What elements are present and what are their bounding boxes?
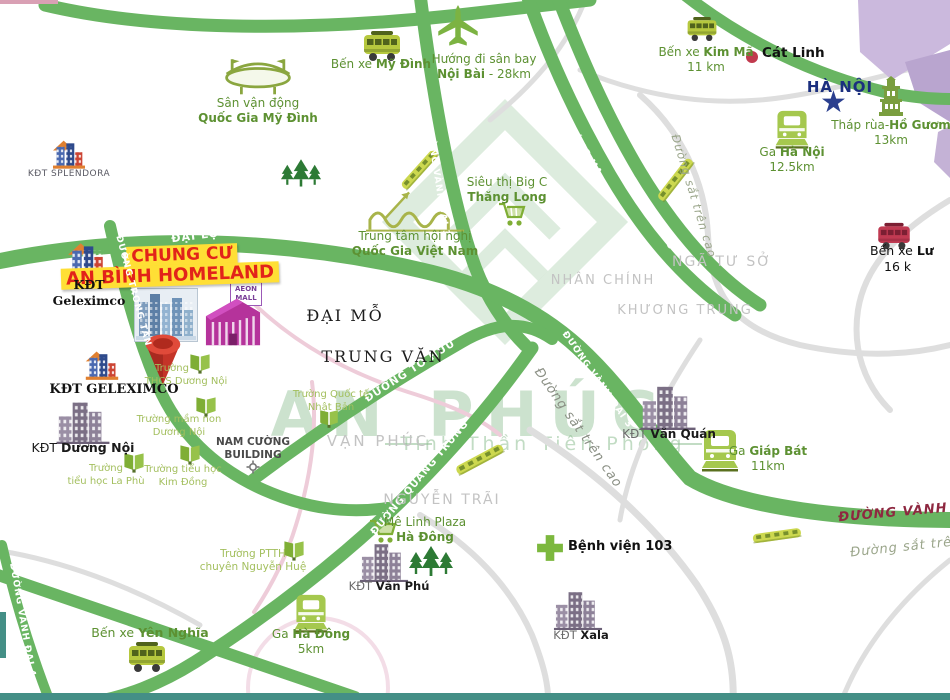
kdt-van-quan-label: KĐT Văn Quán bbox=[622, 427, 716, 442]
area-label-van-phuc: VẠN PHÚC bbox=[327, 432, 429, 450]
me-linh-line2: Hà Đông bbox=[396, 530, 454, 544]
noi-bai-label: Hướng đi sân bay Nội Bài - 28km bbox=[432, 52, 537, 82]
nguyen-hue-line1: Trường PTTH bbox=[200, 548, 307, 561]
kdt-building-icon-van-quan bbox=[636, 382, 700, 430]
kdt-duong-noi-prefix: KĐT bbox=[32, 440, 62, 455]
splendora-building-icon bbox=[50, 138, 88, 170]
ben-xe-luong-prefix: Bến xe bbox=[870, 243, 917, 258]
hoi-nghi-label: Trung tâm hội nghị Quốc Gia Việt Nam bbox=[352, 229, 478, 259]
noi-bai-line1: Hướng đi sân bay bbox=[432, 52, 537, 67]
geleximco-line2: Geleximco bbox=[53, 293, 126, 309]
benh-vien-103-label: Bệnh viện 103 bbox=[568, 539, 672, 555]
nam-cuong-label: NAM CƯỜNG BUILDING bbox=[216, 436, 290, 462]
turtle-tower-icon bbox=[872, 76, 910, 122]
ga-ha-dong-name: Hà Đông bbox=[292, 627, 350, 641]
kdt-geleximco-label: KĐT Geleximco bbox=[53, 277, 126, 308]
nam-cuong-line2: BUILDING bbox=[216, 449, 290, 462]
kdt-duong-noi-name: Dương Nội bbox=[61, 440, 134, 455]
ha-noi-label: HÀ NỘI bbox=[807, 78, 873, 97]
kim-ma-prefix: Bến xe bbox=[658, 45, 703, 59]
top-edge-strip bbox=[0, 0, 58, 4]
ben-xe-luong-label: Bến xe Lư bbox=[870, 243, 934, 259]
noi-bai-name: Nội Bài bbox=[437, 67, 485, 81]
nguyen-hue-line2: chuyên Nguyễn Huệ bbox=[200, 561, 307, 574]
la-phu-line1: Trường bbox=[67, 463, 144, 476]
ga-ha-noi-name: Hà Nội bbox=[780, 145, 825, 159]
school-book-icon-kim-dong bbox=[178, 444, 202, 466]
ga-ha-noi-distance: 12.5km bbox=[759, 160, 824, 175]
area-label-nga-tu-so: NGÃ TƯ SỞ bbox=[672, 254, 772, 270]
thcs-line1: Trường bbox=[117, 363, 228, 376]
ga-ha-dong-distance: 5km bbox=[272, 642, 350, 657]
yen-nghia-name: Yên Nghĩa bbox=[138, 625, 209, 640]
kdt-building-icon-van-phu bbox=[358, 540, 410, 582]
my-dinh-name: Mỹ Đình bbox=[376, 57, 431, 71]
area-label-trung-van: TRUNG VĂN bbox=[321, 347, 444, 366]
cat-linh-label: Cát Linh bbox=[762, 45, 825, 62]
geleximco2-building-icon bbox=[84, 346, 120, 384]
kdt-van-quan-prefix: KĐT bbox=[622, 427, 650, 441]
kim-ma-name: Kim Mã bbox=[703, 45, 753, 59]
mam-non-line1: Trường mầm non bbox=[137, 414, 222, 427]
ben-xe-luong-name: Lư bbox=[917, 243, 934, 258]
kdt-duong-noi-label: KĐT Dương Nội bbox=[32, 440, 135, 456]
left-edge-bar bbox=[0, 612, 6, 658]
me-linh-label: Mê Linh Plaza Hà Đông bbox=[384, 515, 466, 545]
giap-bat-name: Giáp Bát bbox=[749, 444, 807, 458]
thcs-duong-noi-label: Trường THCS Dương Nội bbox=[117, 363, 228, 388]
aeon-line1: AEON bbox=[235, 285, 257, 294]
nam-cuong-line1: NAM CƯỜNG bbox=[216, 436, 290, 449]
giap-bat-prefix: Ga bbox=[729, 444, 749, 458]
kdt-xala-label: KĐT Xala bbox=[553, 628, 608, 642]
nhat-ban-line1: Trường Quốc tế bbox=[293, 389, 369, 402]
splendora-label: KĐT SPLENDORA bbox=[28, 169, 110, 180]
mam-non-line2: Dương Nội bbox=[137, 427, 222, 440]
my-dinh-prefix: Bến xe bbox=[331, 57, 376, 71]
area-label-nguyen-trai: NGUYỄN TRÃI bbox=[383, 492, 500, 508]
stadium-icon bbox=[220, 50, 296, 98]
thcs-line2: THCS Dương Nội bbox=[145, 376, 228, 389]
kim-dong-label: Trường tiểu học Kim Đồng bbox=[144, 464, 221, 489]
kdt-van-phu-label: KĐT Văn Phú bbox=[349, 579, 430, 593]
geleximco-line1: KĐT bbox=[53, 277, 126, 293]
cart-icon-big-c bbox=[497, 201, 527, 229]
ga-ha-dong-label: Ga Hà Đông 5km bbox=[272, 627, 350, 657]
thap-rua-distance: 13km bbox=[831, 133, 950, 148]
kdt-van-quan-name: Văn Quán bbox=[650, 427, 716, 441]
area-label-nhan-chinh: NHÂN CHÍNH bbox=[551, 273, 655, 288]
kdt-xala-name: Xala bbox=[580, 628, 608, 642]
thap-rua-label: Tháp rùa-Hồ Gươm 13km bbox=[831, 118, 950, 148]
big-c-line2: Thăng Long bbox=[467, 190, 546, 204]
bottom-edge-bar bbox=[0, 693, 950, 700]
mam-non-label: Trường mầm non Dương Nội bbox=[137, 414, 222, 439]
la-phu-line2: tiểu học La Phù bbox=[67, 476, 144, 489]
map-canvas: AN PHÚC Tinh Thần Tiên Phong bbox=[0, 0, 950, 700]
trees-icon-top bbox=[280, 156, 322, 188]
big-c-line1: Siêu thị Big C bbox=[467, 175, 548, 190]
kdt-building-icon-duong-noi bbox=[52, 398, 114, 444]
giap-bat-distance: 11km bbox=[729, 459, 807, 474]
hoi-nghi-line1: Trung tâm hội nghị bbox=[352, 229, 478, 244]
la-phu-label: Trường tiểu học La Phù bbox=[67, 463, 144, 488]
kim-dong-line2: Kim Đồng bbox=[144, 477, 221, 490]
ga-ha-noi-label: Ga Hà Nội 12.5km bbox=[759, 145, 824, 175]
trees-icon-van-phu bbox=[408, 544, 454, 576]
ga-giap-bat-label: Ga Giáp Bát 11km bbox=[729, 444, 807, 474]
thap-rua-name: Hồ Gươm bbox=[889, 118, 950, 132]
area-label-dai-mo: ĐẠI MỖ bbox=[306, 306, 383, 325]
noi-bai-distance: - 28km bbox=[485, 67, 531, 81]
ga-ha-dong-prefix: Ga bbox=[272, 627, 292, 641]
hospital-cross-icon bbox=[536, 534, 564, 562]
nhat-ban-label: Trường Quốc tế Nhật Bản bbox=[293, 389, 369, 414]
ga-ha-noi-prefix: Ga bbox=[759, 145, 779, 159]
stadium-label: Sân vận động Quốc Gia Mỹ Đình bbox=[198, 96, 318, 126]
road-top-strip bbox=[45, 0, 590, 26]
nguyen-hue-label: Trường PTTH chuyên Nguyễn Huệ bbox=[200, 548, 307, 574]
kim-ma-distance: 11 km bbox=[658, 60, 753, 75]
kdt-building-icon-xala bbox=[552, 588, 604, 630]
kdt-van-phu-prefix: KĐT bbox=[349, 579, 376, 593]
thap-rua-prefix: Tháp rùa- bbox=[831, 118, 889, 132]
hoi-nghi-line2: Quốc Gia Việt Nam bbox=[352, 244, 478, 258]
me-linh-line1: Mê Linh Plaza bbox=[384, 515, 466, 530]
bus-icon-yen-nghia bbox=[126, 641, 168, 673]
big-c-label: Siêu thị Big C Thăng Long bbox=[467, 175, 548, 205]
kim-dong-line1: Trường tiểu học bbox=[144, 464, 221, 477]
train-icon-ga-ha-noi bbox=[775, 109, 809, 149]
kdt-van-phu-name: Văn Phú bbox=[376, 579, 430, 593]
yen-nghia-prefix: Bến xe bbox=[91, 625, 138, 640]
ben-xe-yen-nghia-label: Bến xe Yên Nghĩa bbox=[91, 625, 209, 641]
area-label-khuong-trung: KHƯƠNG TRUNG bbox=[617, 303, 753, 318]
nhat-ban-line2: Nhật Bản bbox=[293, 402, 369, 415]
kdt-xala-prefix: KĐT bbox=[553, 628, 580, 642]
stadium-line2: Quốc Gia Mỹ Đình bbox=[198, 111, 318, 125]
airplane-icon bbox=[436, 4, 480, 50]
ben-xe-my-dinh-label: Bến xe Mỹ Đình bbox=[331, 57, 431, 72]
ben-xe-kim-ma-label: Bến xe Kim Mã 11 km bbox=[658, 45, 753, 75]
aeon-mall-building-icon bbox=[204, 296, 262, 348]
stadium-line1: Sân vận động bbox=[198, 96, 318, 111]
ben-xe-luong-distance: 16 k bbox=[884, 259, 911, 275]
bus-icon-kim-ma bbox=[686, 16, 718, 42]
